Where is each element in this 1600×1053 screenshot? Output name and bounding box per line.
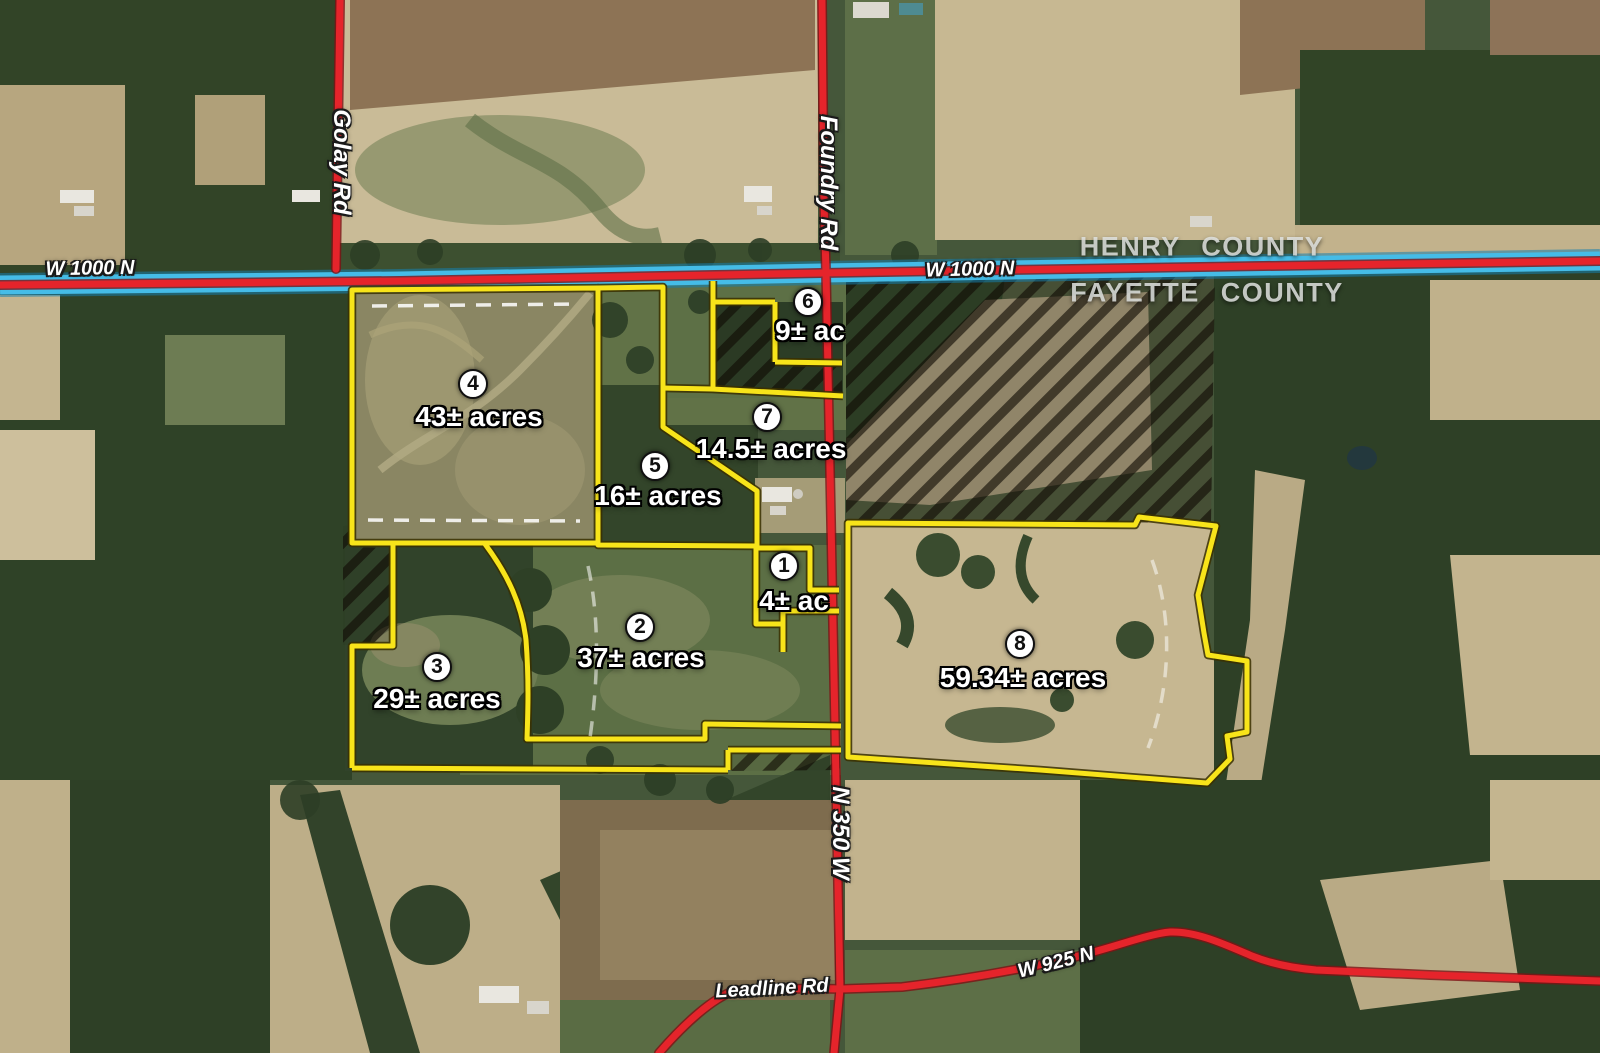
county-label-fayette: FAYETTE COUNTY [1070, 278, 1344, 309]
tract-6-acreage-label: 9± ac [775, 315, 845, 347]
tract-2-marker: 2 [625, 612, 655, 642]
tract-4-marker: 4 [458, 369, 488, 399]
tract-6-marker: 6 [793, 287, 823, 317]
road-label-w1000n-east: W 1000 N [925, 257, 1015, 282]
tract-5-acreage-label: 16± acres [594, 480, 721, 512]
tract-1-acreage-label: 4± ac [759, 585, 829, 617]
tract-7-acreage-label: 14.5± acres [696, 433, 847, 465]
road-label-golay: Golay Rd [327, 109, 355, 214]
county-label-henry: HENRY COUNTY [1080, 232, 1325, 263]
satellite-basemap [0, 0, 1600, 1053]
tract-2-acreage-label: 37± acres [577, 642, 704, 674]
tract-7-marker: 7 [752, 402, 782, 432]
tract-3-acreage-label: 29± acres [373, 683, 500, 715]
tract-8-acreage-label: 59.34± acres [940, 662, 1106, 694]
tract-3-marker: 3 [422, 652, 452, 682]
road-label-foundry: Foundry Rd [814, 116, 842, 251]
tract-1-marker: 1 [769, 551, 799, 581]
tract-4-acreage-label: 43± acres [415, 401, 542, 433]
auction-parcel-map: Golay Rd Foundry Rd N 350 W W 1000 N W 1… [0, 0, 1600, 1053]
road-label-n350w: N 350 W [826, 786, 854, 879]
road-label-w1000n-west: W 1000 N [45, 257, 134, 282]
tract-5-marker: 5 [640, 451, 670, 481]
tract-8-marker: 8 [1005, 629, 1035, 659]
